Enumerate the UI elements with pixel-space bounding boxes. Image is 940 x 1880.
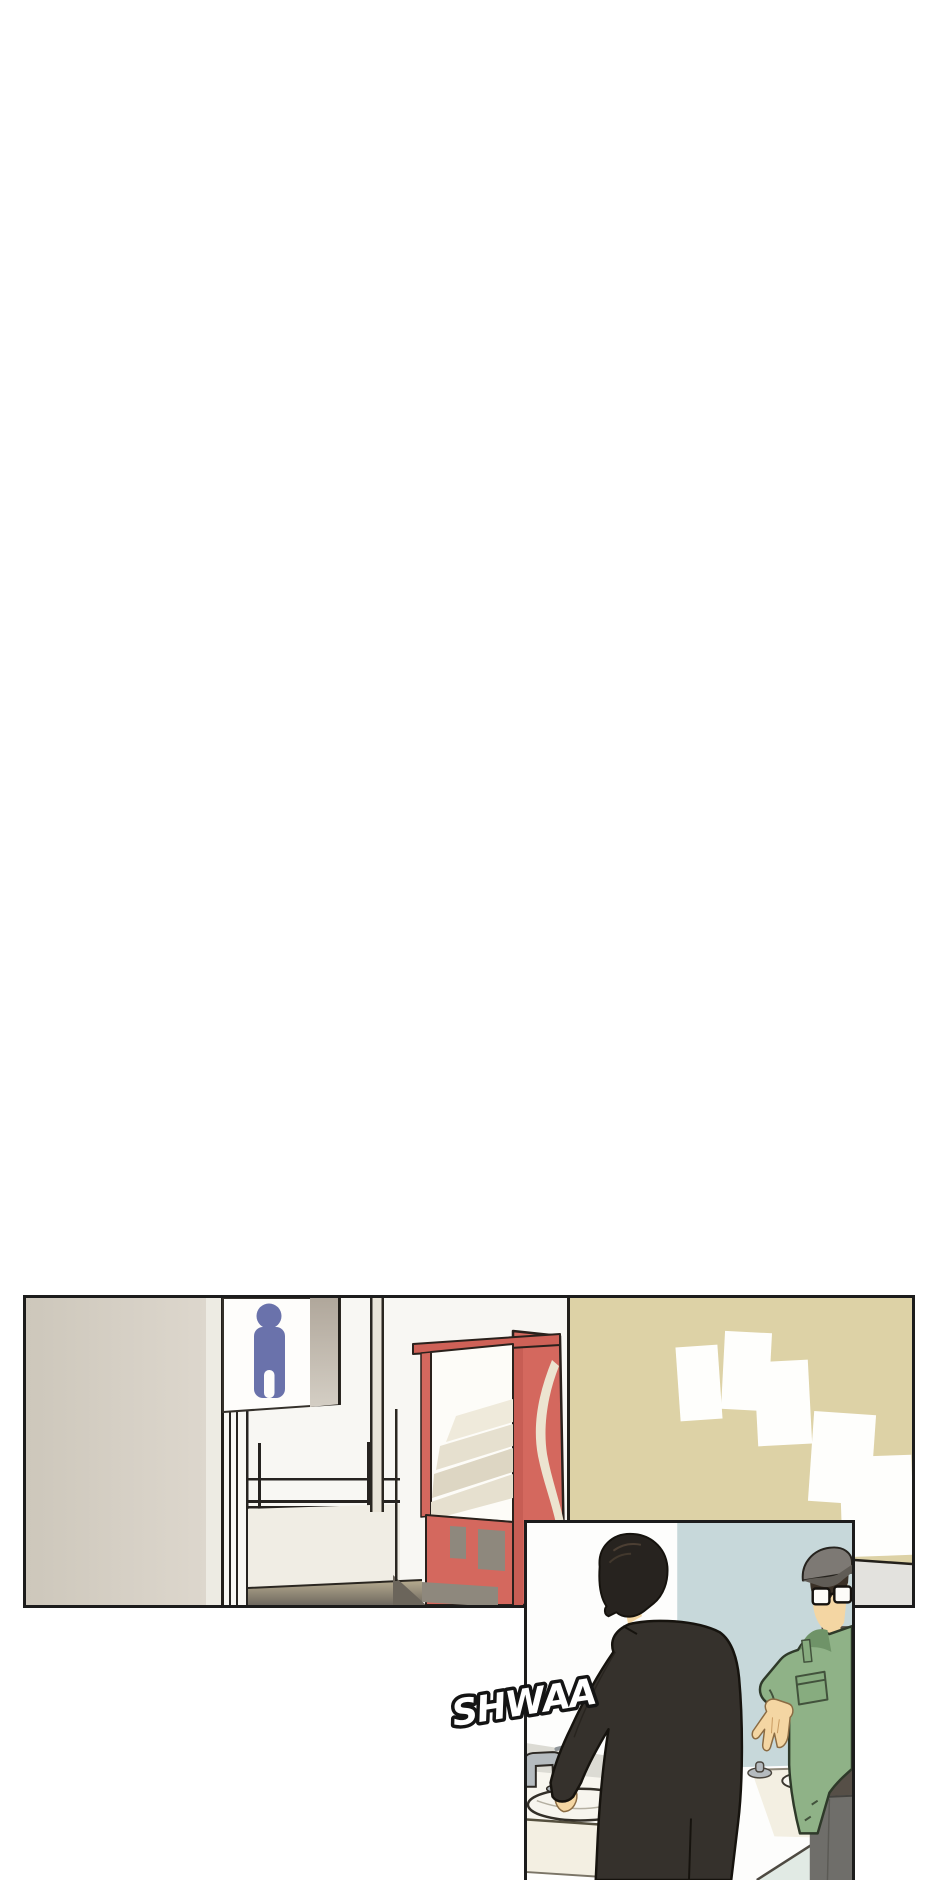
poster: [675, 1345, 722, 1422]
wainscot-panel: [248, 1504, 400, 1587]
friend-strap: [802, 1640, 812, 1663]
wall-edge-strip: [206, 1298, 221, 1605]
male-restroom-icon: [254, 1304, 285, 1399]
sign-shadow-strip: [310, 1298, 340, 1407]
sign-edge-line: [338, 1298, 341, 1405]
bathroom-scene: [527, 1523, 852, 1880]
vending-side-shade: [513, 1338, 523, 1605]
poster: [754, 1360, 812, 1447]
vending-left-frame: [421, 1352, 431, 1517]
left-wall: [26, 1298, 206, 1605]
friend-pocket: [796, 1672, 827, 1705]
bathroom-panel: [524, 1520, 855, 1880]
comic-page: SHWAA: [0, 0, 940, 1880]
restroom-sign: [223, 1298, 341, 1412]
